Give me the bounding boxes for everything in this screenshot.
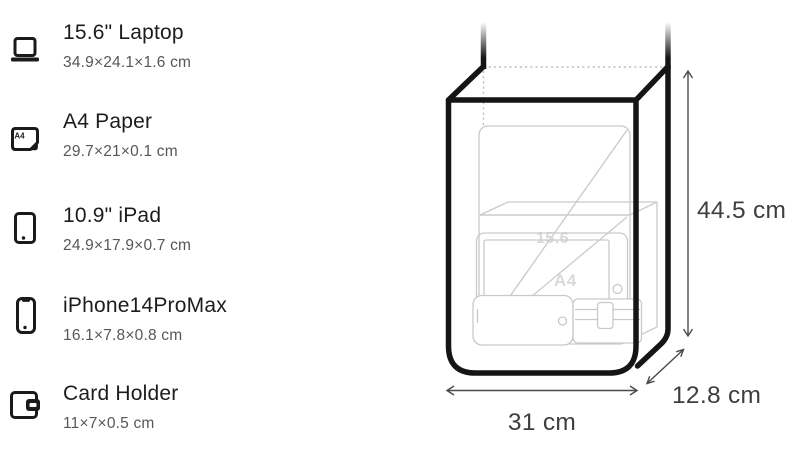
inner-card-holder-outline [573, 299, 642, 343]
depth-label: 12.8 cm [672, 382, 761, 409]
bag-top-left-edge [449, 67, 484, 101]
width-label: 31 cm [508, 409, 576, 436]
bag-dimension-diagram: 15.6 A4 [0, 0, 800, 455]
size-comparison-infographic: 15.6" Laptop 34.9×24.1×1.6 cm A4 A4 Pape… [0, 0, 800, 455]
inner-iphone-outline [473, 296, 573, 346]
height-label: 44.5 cm [697, 197, 786, 224]
width-arrow [447, 386, 637, 395]
inner-a4-label: A4 [554, 271, 577, 290]
height-arrow [684, 71, 693, 336]
bag-top-right-edge [636, 67, 668, 101]
inner-items-outlines: 15.6 A4 [473, 126, 657, 345]
